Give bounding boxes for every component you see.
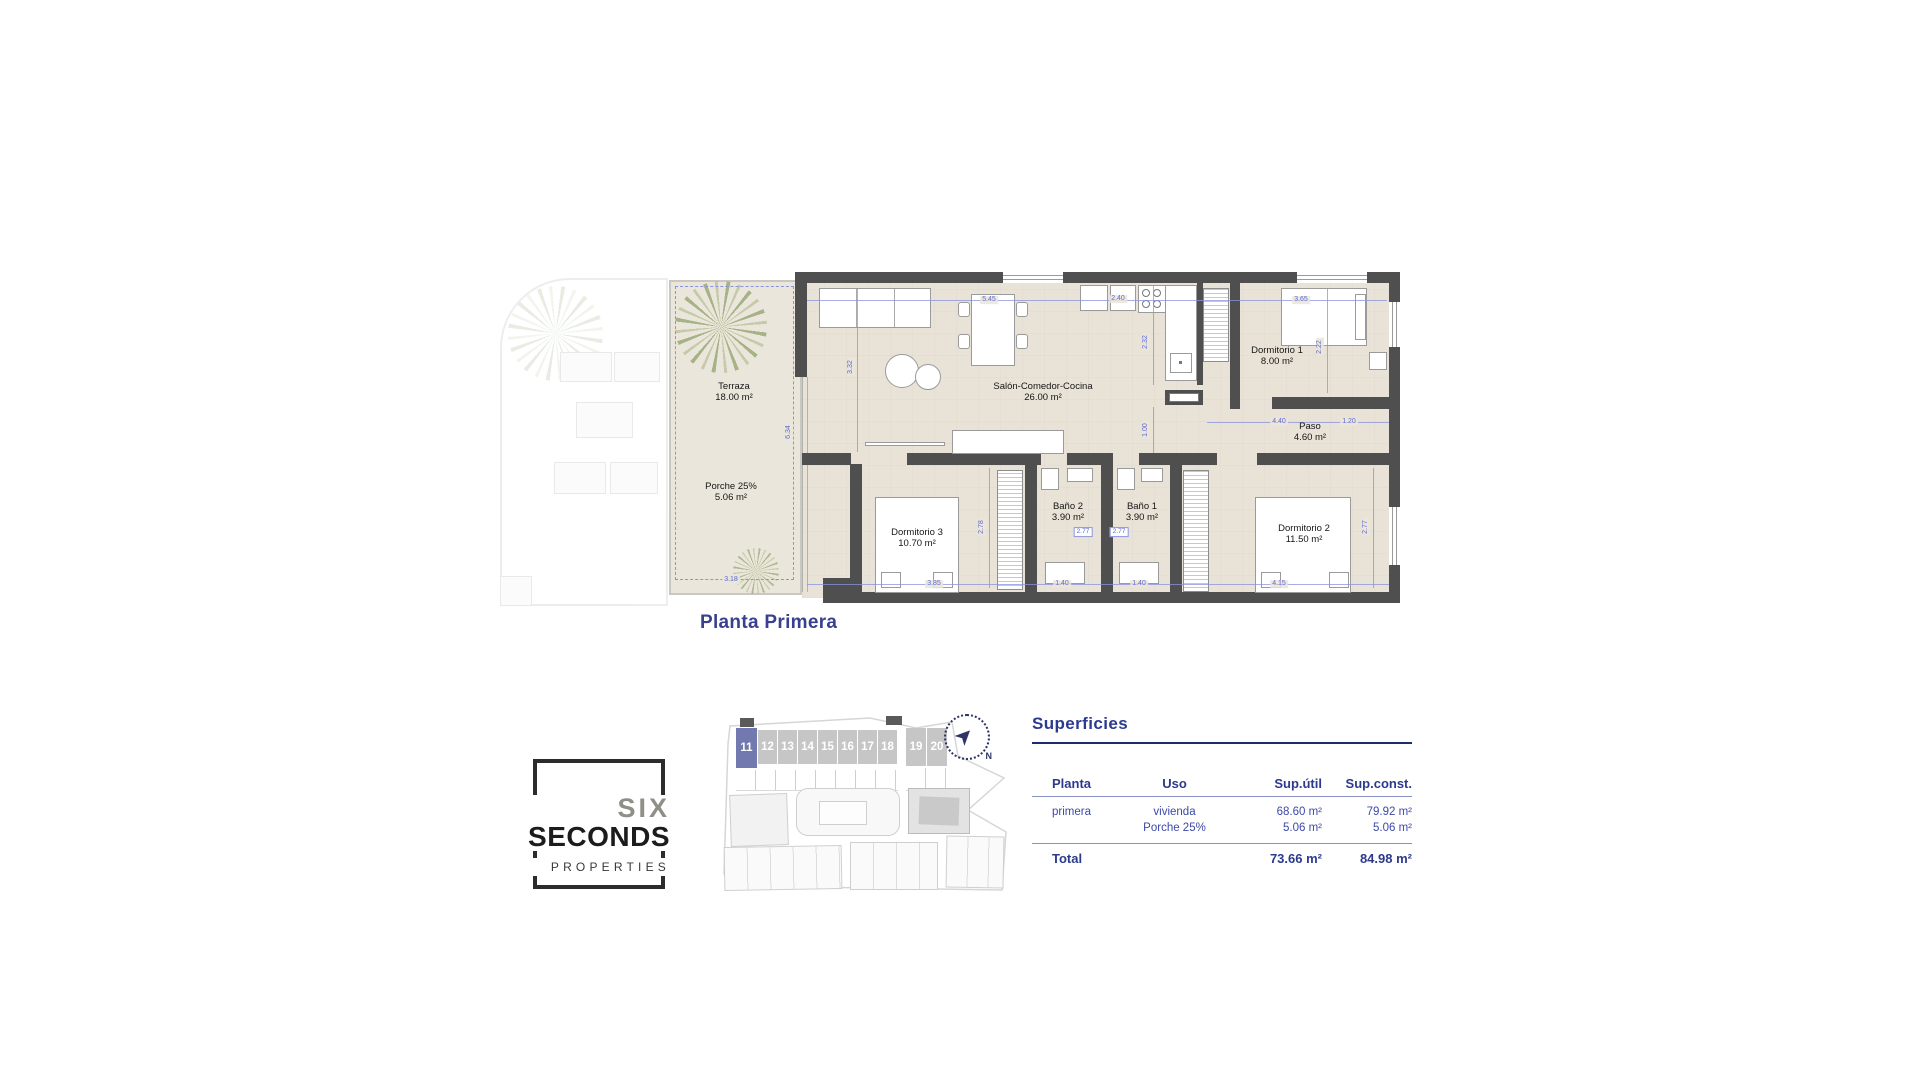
washbasin <box>1141 468 1163 482</box>
pillow <box>881 572 901 588</box>
logo-word-six: SIX <box>525 795 673 822</box>
cell-uso: Porche 25% <box>1122 820 1227 836</box>
site-garages <box>724 845 843 891</box>
wall <box>1063 272 1297 283</box>
dimension-label: 1.20 <box>1340 418 1358 426</box>
ghost-furniture <box>554 462 606 494</box>
tv-cabinet <box>952 430 1064 454</box>
roof-mark <box>740 718 754 727</box>
unit-cell-19: 19 <box>906 728 926 766</box>
cell-uso: vivienda <box>1122 804 1227 820</box>
cell-planta: primera <box>1032 804 1122 820</box>
dimension-label: 3.18 <box>722 576 740 584</box>
toilet <box>1041 468 1059 490</box>
surfaces-title: Superficies <box>1032 714 1412 734</box>
roof-mark <box>886 716 902 725</box>
cell-sup-util: 5.06 m² <box>1227 820 1322 836</box>
window <box>1389 302 1400 347</box>
table-header: Planta Uso Sup.útil Sup.const. <box>1032 776 1412 797</box>
room-label-dormitorio3: Dormitorio 310.70 m² <box>891 527 943 549</box>
wall <box>1025 464 1037 603</box>
site-building <box>729 793 789 847</box>
room-label-porche: Porche 25%5.06 m² <box>705 481 757 503</box>
room-label-bano2: Baño 23.90 m² <box>1052 501 1084 523</box>
dimension-label: 2.77 <box>1362 518 1370 536</box>
site-plan: 11 12 13 14 15 16 17 18 19 20 ➤ N <box>720 714 1012 896</box>
ghost-furniture <box>610 462 658 494</box>
dimension-label: 1.00 <box>1142 421 1150 439</box>
dimension-label: 3.32 <box>847 358 855 376</box>
surfaces-panel: Superficies Planta Uso Sup.útil Sup.cons… <box>1032 714 1412 866</box>
wall <box>907 453 1041 465</box>
six-seconds-logo: SIX SECONDS PROPERTIES <box>533 759 665 889</box>
dimension-label: 3.85 <box>925 580 943 588</box>
total-divider <box>1032 843 1412 844</box>
dimension-label: 6.34 <box>785 423 793 441</box>
brochure-page: 5.45 2.40 3.65 3.32 2.32 2.22 6.34 1.00 … <box>0 0 1920 1080</box>
col-sup-util: Sup.útil <box>1227 776 1322 791</box>
wall <box>1230 283 1240 409</box>
dimension-boundary <box>675 286 794 580</box>
total-sup-const: 84.98 m² <box>1322 851 1412 866</box>
wall <box>802 453 851 465</box>
wall <box>1178 453 1217 465</box>
cell-sup-const: 79.92 m² <box>1322 804 1412 820</box>
ghost-furniture <box>614 352 660 382</box>
room-label-salon: Salón-Comedor-Cocina26.00 m² <box>993 381 1092 403</box>
neighbour-unit-outline <box>500 278 668 606</box>
coffee-table <box>885 354 919 388</box>
ghost-furniture <box>576 402 633 438</box>
site-garages <box>850 842 938 890</box>
unit-cell-13: 13 <box>778 730 797 764</box>
wall <box>795 272 807 377</box>
unit-cell-17: 17 <box>858 730 877 764</box>
shelf <box>865 442 945 446</box>
wall <box>1389 347 1400 507</box>
wall <box>1272 397 1400 409</box>
wardrobe <box>1183 470 1209 592</box>
room-label-terraza: Terraza18.00 m² <box>715 381 753 403</box>
chair <box>958 334 970 349</box>
table-row: Porche 25% 5.06 m² 5.06 m² <box>1032 820 1412 836</box>
wall <box>1170 464 1182 603</box>
north-label: N <box>986 751 993 761</box>
dimension-label: 2.77 <box>1110 527 1129 537</box>
logo-word-properties: PROPERTIES <box>525 858 673 876</box>
cell-planta <box>1032 820 1122 836</box>
wall <box>823 578 850 603</box>
room-label-dormitorio1: Dormitorio 18.00 m² <box>1251 345 1303 367</box>
window <box>1003 272 1063 283</box>
col-planta: Planta <box>1032 776 1122 791</box>
cell-sup-util: 68.60 m² <box>1227 804 1322 820</box>
wall <box>1389 272 1400 302</box>
kitchen-counter <box>1080 285 1108 311</box>
page-title: Planta Primera <box>700 612 837 634</box>
unit-cell-15: 15 <box>818 730 837 764</box>
room-label-dormitorio2: Dormitorio 211.50 m² <box>1278 523 1330 545</box>
unit-cell-14: 14 <box>798 730 817 764</box>
cell-sup-const: 5.06 m² <box>1322 820 1412 836</box>
bedside-table <box>1369 352 1387 370</box>
room-label-bano1: Baño 13.90 m² <box>1126 501 1158 523</box>
unit-cell-11: 11 <box>736 728 757 768</box>
wardrobe <box>997 470 1023 590</box>
site-garages <box>946 835 1005 888</box>
chair <box>1016 302 1028 317</box>
ghost-furniture <box>560 352 612 382</box>
wall <box>850 464 862 603</box>
stove-icon <box>1138 285 1166 313</box>
dimension-label: 2.77 <box>1074 527 1093 537</box>
chair <box>958 302 970 317</box>
coffee-table <box>915 364 941 390</box>
sink-icon <box>1170 353 1192 373</box>
dimension-label: 3.65 <box>1292 296 1310 304</box>
floor-plan: 5.45 2.40 3.65 3.32 2.32 2.22 6.34 1.00 … <box>667 272 1400 603</box>
wall <box>795 272 1003 283</box>
site-building-dark <box>908 788 970 834</box>
ghost-furniture <box>500 576 532 606</box>
window <box>1297 272 1367 283</box>
kitchen-lower-counter <box>1169 393 1199 402</box>
unit-cell-16: 16 <box>838 730 857 764</box>
dining-table <box>971 294 1015 366</box>
window <box>1389 507 1400 565</box>
compass-icon: ➤ N <box>944 714 990 760</box>
toilet <box>1117 468 1135 490</box>
dimension-label: 2.22 <box>1316 338 1324 356</box>
dimension-label: 4.40 <box>1270 418 1288 426</box>
unit-cell-12: 12 <box>758 730 777 764</box>
total-label: Total <box>1032 851 1122 866</box>
chair <box>1016 334 1028 349</box>
dimension-label: 2.78 <box>978 518 986 536</box>
cursor-arrow-icon: ➤ <box>949 720 980 751</box>
dimension-label: 1.40 <box>1130 580 1148 588</box>
table-total-row: Total 73.66 m² 84.98 m² <box>1032 851 1412 866</box>
col-sup-const: Sup.const. <box>1322 776 1412 791</box>
dimension-label: 2.40 <box>1109 295 1127 303</box>
site-pool-area <box>796 788 900 836</box>
dimension-label: 2.32 <box>1142 333 1150 351</box>
wall <box>1257 453 1389 465</box>
dimension-label: 5.45 <box>980 296 998 304</box>
sliding-door <box>802 377 808 592</box>
logo-word-seconds: SECONDS <box>525 822 673 851</box>
table-row: primera vivienda 68.60 m² 79.92 m² <box>1032 804 1412 820</box>
col-uso: Uso <box>1122 776 1227 791</box>
total-sup-util: 73.66 m² <box>1227 851 1322 866</box>
total-spacer <box>1122 851 1227 866</box>
pillow <box>1329 572 1349 588</box>
sofa <box>819 288 931 328</box>
dimension-label: 1.40 <box>1053 580 1071 588</box>
unit-cell-18: 18 <box>878 730 897 764</box>
title-underline <box>1032 742 1412 744</box>
dimension-label: 4.15 <box>1270 580 1288 588</box>
room-label-paso: Paso4.60 m² <box>1294 421 1326 443</box>
washbasin <box>1067 468 1093 482</box>
